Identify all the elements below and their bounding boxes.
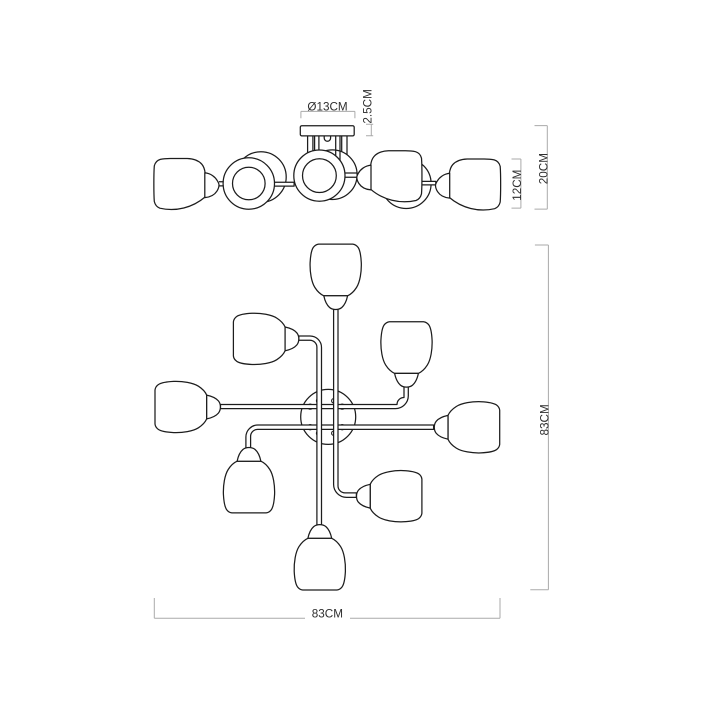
svg-text:Ø13CM: Ø13CM [307, 100, 347, 113]
svg-text:12CM: 12CM [511, 170, 524, 201]
svg-text:83CM: 83CM [538, 404, 551, 435]
svg-text:2.5CM: 2.5CM [362, 89, 375, 123]
svg-text:20CM: 20CM [537, 153, 550, 184]
svg-text:83CM: 83CM [312, 607, 343, 620]
